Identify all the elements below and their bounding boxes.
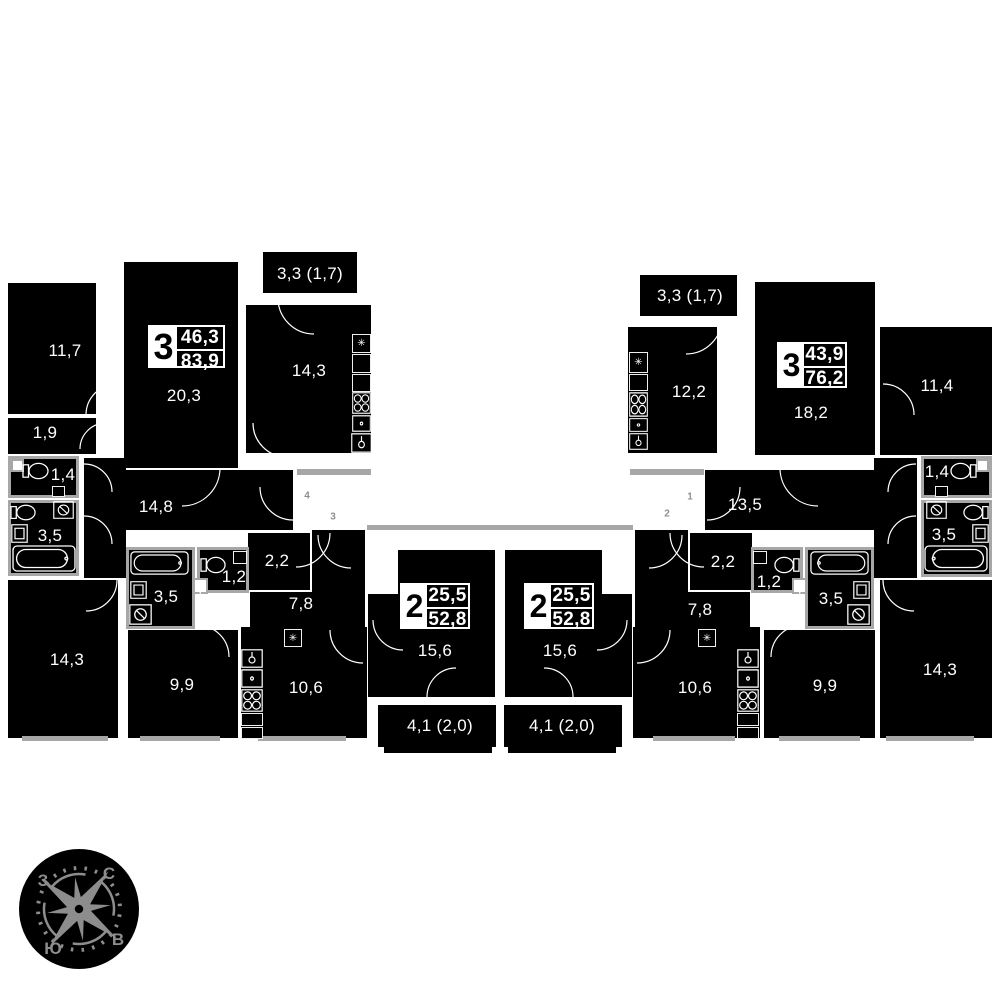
window-strip <box>140 736 220 741</box>
entry-notch-left <box>368 548 398 594</box>
label-room-14-3: 14,3 <box>50 650 84 670</box>
sink-icon <box>11 524 28 543</box>
label-room-20-3: 20,3 <box>167 386 201 406</box>
bathtub-icon <box>130 551 189 575</box>
stove-icon <box>629 392 648 417</box>
label-room-9-9: 9,9 <box>813 676 838 696</box>
counter-icon <box>241 669 263 688</box>
apartment-total-area: 52,8 <box>551 609 592 631</box>
apartment-rooms-count: 3 <box>779 344 804 386</box>
apartment-living-area: 43,9 <box>804 344 845 368</box>
label-kitchen-12-2: 12,2 <box>672 382 706 402</box>
window-strip <box>653 736 735 741</box>
label-hall-13-5: 13,5 <box>728 495 762 515</box>
kitchen-counter <box>737 727 759 739</box>
bathtub-icon <box>924 545 988 572</box>
label-bath-3-5: 3,5 <box>932 525 957 545</box>
label-room-11-7: 11,7 <box>48 341 81 361</box>
wc-tank-box <box>753 551 767 564</box>
sink-icon <box>853 581 870 599</box>
label-wc-1-4: 1,4 <box>51 465 76 485</box>
label-kitchen-10-6: 10,6 <box>678 678 712 698</box>
kitchen-counter <box>352 354 371 373</box>
kitchen-sink-icon <box>629 433 648 450</box>
kitchen-counter <box>241 713 263 726</box>
label-wc-1-4: 1,4 <box>925 462 950 482</box>
compass-rose: С З Ю В <box>18 848 140 970</box>
apartment-stamp-3room-right: 3 43,9 76,2 <box>777 342 847 388</box>
unit-number: 4 <box>304 491 310 502</box>
apartment-total-area: 83,9 <box>177 351 223 373</box>
label-storage-2-2: 2,2 <box>711 552 736 572</box>
unit-number: 2 <box>664 509 670 520</box>
wc-tank-box <box>935 486 948 497</box>
wc-tank-box <box>52 486 65 497</box>
hall-right-7-8-upper <box>635 530 688 595</box>
washing-machine-icon <box>129 604 152 625</box>
apartment-total-area: 52,8 <box>427 609 468 631</box>
hall-right-column <box>874 458 917 578</box>
label-room-15-6: 15,6 <box>418 641 452 661</box>
corridor-wall-left <box>297 469 371 475</box>
sink-icon <box>972 524 989 543</box>
window-strip <box>258 736 346 741</box>
fridge-icon: ✳ <box>629 352 648 373</box>
compass-south-label: Ю <box>44 939 62 958</box>
stove-icon <box>737 689 759 712</box>
shaft-box <box>792 578 807 594</box>
washing-machine-icon <box>847 604 870 625</box>
apartment-living-area: 25,5 <box>427 585 468 609</box>
label-room-1-9: 1,9 <box>33 423 58 443</box>
label-balcony-right: 3,3 (1,7) <box>657 286 723 306</box>
kitchen-counter <box>241 727 263 739</box>
label-kitchen-14-3: 14,3 <box>292 361 326 381</box>
fridge-icon: ✳ <box>352 334 371 353</box>
kitchen-sink-icon <box>737 649 759 668</box>
stove-icon <box>352 392 371 414</box>
window-strip <box>22 736 108 741</box>
apartment-stamp-2room-left: 2 25,5 52,8 <box>400 583 470 629</box>
counter-icon <box>352 415 371 432</box>
toilet-icon <box>22 461 50 481</box>
label-kitchen-10-6: 10,6 <box>289 678 323 698</box>
corridor-wall-right <box>630 469 704 475</box>
bathtub-icon <box>810 551 869 575</box>
apartment-living-area: 46,3 <box>177 327 223 351</box>
toilet-icon <box>962 503 989 522</box>
window-strip <box>886 736 974 741</box>
hall-left-14-8 <box>84 470 293 530</box>
label-hall-14-8: 14,8 <box>139 497 173 517</box>
washing-machine-icon <box>53 501 74 519</box>
counter-icon <box>629 418 648 432</box>
kitchen-sink-icon <box>351 433 372 453</box>
shaft-box <box>976 459 989 472</box>
wc-tank-box <box>233 551 247 564</box>
room-right-14-3 <box>880 580 992 738</box>
toilet-icon <box>949 461 977 481</box>
label-balcony-4-1: 4,1 (2,0) <box>529 716 595 736</box>
kitchen-counter <box>352 374 371 392</box>
compass-north-label: С <box>103 864 115 883</box>
kitchen-counter <box>737 713 759 726</box>
apartment-total-area: 76,2 <box>804 368 845 390</box>
balcony-mid-left-step <box>384 747 492 753</box>
compass-east-label: В <box>112 930 124 949</box>
apartment-rooms-count: 2 <box>402 585 427 627</box>
apartment-rooms-count: 3 <box>150 327 177 366</box>
apartment-living-area: 25,5 <box>551 585 592 609</box>
fridge-icon: ✳ <box>698 629 716 647</box>
hall-left-7-8-upper <box>312 530 365 595</box>
label-room-18-2: 18,2 <box>794 403 828 423</box>
label-storage-2-2: 2,2 <box>265 551 290 571</box>
label-room-9-9: 9,9 <box>170 675 195 695</box>
bathtub-icon <box>12 545 76 572</box>
balcony-mid-right-step <box>508 747 616 753</box>
label-hall-7-8: 7,8 <box>289 594 314 614</box>
compass-west-label: З <box>38 871 49 890</box>
corridor-wall-center <box>367 525 633 530</box>
label-bath2-3-5: 3,5 <box>819 589 844 609</box>
shaft-box <box>193 578 208 594</box>
label-bath2-3-5: 3,5 <box>154 587 179 607</box>
label-wc2-1-2: 1,2 <box>757 572 782 592</box>
label-room-11-4: 11,4 <box>920 376 953 396</box>
toilet-icon <box>10 503 37 522</box>
apartment-rooms-count: 2 <box>526 585 551 627</box>
label-room-15-6: 15,6 <box>543 641 577 661</box>
unit-number: 1 <box>687 492 693 503</box>
label-wc2-1-2: 1,2 <box>222 567 247 587</box>
window-strip <box>779 736 860 741</box>
apartment-stamp-2room-right: 2 25,5 52,8 <box>524 583 594 629</box>
sink-icon <box>130 581 147 599</box>
stove-icon <box>241 689 263 712</box>
counter-icon <box>737 669 759 688</box>
entry-notch-right <box>602 548 632 594</box>
apartment-stamp-3room-left: 3 46,3 83,9 <box>148 325 225 368</box>
label-room-14-3: 14,3 <box>923 660 957 680</box>
unit-number: 3 <box>330 512 336 523</box>
label-balcony-4-1: 4,1 (2,0) <box>407 716 473 736</box>
washing-machine-icon <box>926 501 947 519</box>
kitchen-sink-icon <box>241 649 263 668</box>
kitchen-counter <box>629 374 648 391</box>
floor-plan: ✳ ✳ ✳ ✳ <box>0 0 1000 1000</box>
label-bath-3-5: 3,5 <box>38 526 63 546</box>
fridge-icon: ✳ <box>284 629 302 647</box>
label-balcony-left: 3,3 (1,7) <box>277 264 343 284</box>
label-hall-7-8: 7,8 <box>688 600 713 620</box>
